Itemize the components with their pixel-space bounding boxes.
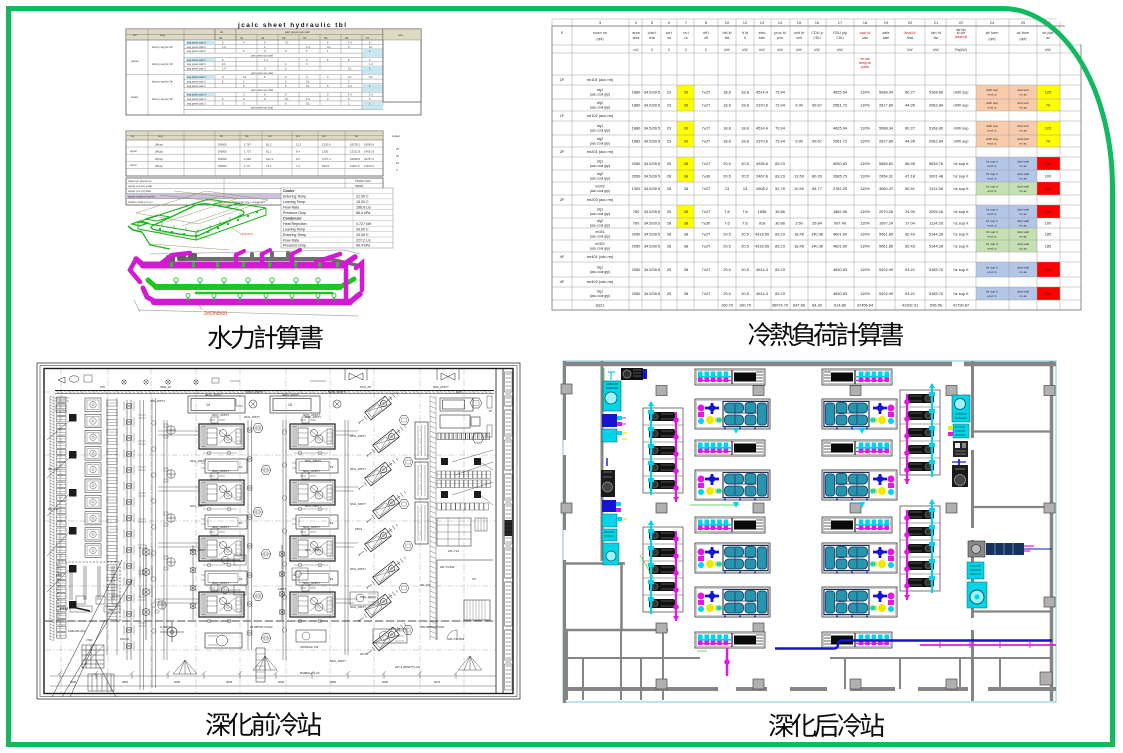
- svg-text:34.5/39.5: 34.5/39.5: [644, 173, 660, 178]
- svg-text:equip prs (a) evap: equip prs (a) evap: [128, 184, 153, 188]
- svg-text:2W_P2s: 2W_P2s: [48, 467, 59, 471]
- svg-text:52.78: 52.78: [775, 186, 785, 191]
- svg-text:2561.72: 2561.72: [833, 138, 847, 143]
- svg-text:J#N_A56TY: J#N_A56TY: [150, 399, 165, 403]
- svg-text:1.4: 1.4: [369, 93, 373, 97]
- svg-text:84.30: 84.30: [812, 303, 823, 308]
- svg-text:kW: kW: [907, 48, 913, 52]
- svg-text:34.5/39.5: 34.5/39.5: [644, 138, 660, 143]
- svg-text:safe: safe: [882, 31, 889, 35]
- svg-text:dn: dn: [220, 30, 224, 34]
- svg-text:25: 25: [667, 267, 671, 272]
- svg-text:seg press calc 0: seg press calc 0: [187, 49, 206, 53]
- svg-text:unit ht: unit ht: [794, 31, 805, 35]
- svg-text:20.5: 20.5: [741, 173, 749, 178]
- svg-text:110%: 110%: [860, 161, 870, 166]
- svg-text:room no: room no: [593, 31, 607, 35]
- svg-text:(opt): (opt): [1020, 37, 1027, 41]
- svg-text:(acu cool grp): (acu cool grp): [590, 294, 610, 298]
- svg-text:rm ac: rm ac: [1019, 189, 1027, 193]
- svg-text:4: 4: [635, 20, 638, 25]
- svg-text:hz sup rt: hz sup rt: [986, 290, 998, 294]
- svg-text:38: 38: [684, 209, 688, 214]
- svg-text:20.5: 20.5: [741, 231, 749, 236]
- svg-text:dnflr sup: dnflr sup: [954, 125, 969, 130]
- svg-text:air form: air form: [986, 31, 999, 35]
- svg-text:1097.24: 1097.24: [879, 220, 894, 225]
- svg-text:20: 20: [908, 20, 913, 25]
- svg-text:30.86: 30.86: [775, 209, 785, 214]
- svg-text:7.6: 7.6: [724, 220, 729, 225]
- svg-text:2#Y-3 2#2W7T2-CN: 2#Y-3 2#2W7T2-CN: [395, 665, 420, 669]
- svg-text:20.5: 20.5: [723, 291, 731, 296]
- svg-text:dn: dn: [220, 134, 224, 138]
- svg-text:1.4: 1.4: [222, 45, 226, 49]
- svg-text:25: 25: [667, 209, 671, 214]
- svg-text:kW: kW: [724, 48, 730, 52]
- svg-text:4#(up): 4#(up): [155, 164, 163, 168]
- svg-text:12: 12: [743, 20, 748, 25]
- svg-text:20.5: 20.5: [741, 267, 749, 272]
- svg-text:21: 21: [934, 20, 939, 25]
- svg-text:bld ld: bld ld: [722, 31, 731, 35]
- svg-text:20.5: 20.5: [741, 291, 749, 296]
- svg-text:5061.85: 5061.85: [879, 243, 893, 248]
- svg-text:C#: C#: [472, 577, 476, 581]
- svg-text:seg press calc 2: seg press calc 2: [187, 84, 206, 88]
- svg-text:36074.70: 36074.70: [772, 303, 789, 308]
- svg-text:dcw wall: dcw wall: [1017, 242, 1029, 246]
- svg-text:1.4: 1.4: [306, 97, 310, 101]
- svg-text:rm ac: rm ac: [1019, 177, 1027, 181]
- svg-text:hz sup rt: hz sup rt: [954, 291, 970, 296]
- svg-text:it ld: it ld: [742, 31, 748, 35]
- svg-text:18.8: 18.8: [741, 89, 749, 94]
- svg-text:hz sup rt: hz sup rt: [986, 242, 998, 246]
- svg-text:3620: 3620: [174, 680, 181, 684]
- svg-text:9.0: 9.0: [296, 157, 300, 161]
- svg-text:dcw wall: dcw wall: [1017, 185, 1029, 189]
- svg-text:ra: ra: [684, 36, 687, 40]
- svg-text:seg press calc 1: seg press calc 1: [187, 62, 206, 66]
- svg-text:82.43: 82.43: [905, 231, 915, 236]
- svg-text:0.1: 0.1: [306, 84, 310, 88]
- svg-text:110%: 110%: [860, 125, 870, 130]
- svg-text:20.5: 20.5: [723, 267, 731, 272]
- svg-text:2.462: 2.462: [244, 157, 251, 161]
- svg-text:2050: 2050: [632, 173, 641, 178]
- svg-text:kW: kW: [796, 48, 802, 52]
- svg-text:rm ac: rm ac: [1019, 224, 1027, 228]
- svg-text:102.3: 102.3: [266, 157, 273, 161]
- svg-text:equip total prs (a+b): equip total prs (a+b): [128, 194, 155, 198]
- svg-text:part press sys calc: part press sys calc: [285, 30, 310, 34]
- svg-text:198: 198: [1045, 291, 1052, 296]
- svg-text:dnflr sup: dnflr sup: [986, 137, 998, 141]
- svg-text:6: 6: [668, 20, 671, 25]
- svg-text:loc: loc: [133, 33, 137, 37]
- svg-text:5088.34: 5088.34: [879, 125, 894, 130]
- svg-text:34.5/39.5: 34.5/39.5: [644, 161, 660, 166]
- svg-text:18278.2: 18278.2: [350, 142, 361, 146]
- svg-text:44.95: 44.95: [905, 138, 915, 143]
- svg-text:140.36: 140.36: [811, 231, 823, 236]
- svg-text:seg press calc 3: seg press calc 3: [187, 101, 206, 105]
- svg-text:5: 5: [651, 20, 654, 25]
- svg-text:NKQ_A56TY: NKQ_A56TY: [303, 581, 320, 585]
- svg-text:83.23: 83.23: [775, 291, 785, 296]
- svg-text:hz sup rt: hz sup rt: [986, 230, 998, 234]
- svg-text:(acu cool grp): (acu cool grp): [590, 212, 610, 216]
- svg-text:factory seg len 3#: factory seg len 3#: [152, 97, 173, 101]
- svg-text:15: 15: [288, 403, 292, 407]
- svg-text:off t: off t: [703, 31, 710, 35]
- svg-text:2F: 2F: [560, 149, 565, 154]
- svg-text:11972.4: 11972.4: [364, 164, 374, 168]
- svg-text:20.5: 20.5: [723, 231, 731, 236]
- svg-text:2954.31: 2954.31: [879, 173, 893, 178]
- svg-text:38600: 38600: [355, 184, 364, 188]
- svg-text:5088.34: 5088.34: [879, 89, 894, 94]
- svg-text:CDU: CDU: [836, 36, 844, 40]
- svg-text:safe: safe: [883, 36, 890, 40]
- svg-text:34.5/39.5: 34.5/39.5: [644, 220, 660, 225]
- svg-text:prs: prs: [296, 134, 300, 138]
- svg-text:13: 13: [760, 20, 765, 25]
- svg-text:1882.06: 1882.06: [833, 209, 847, 214]
- svg-text:lower: lower: [131, 95, 138, 99]
- svg-text:KKG_A5: KKG_A5: [360, 385, 371, 389]
- svg-text:2#-NB79GY/C322: 2#-NB79GY/C322: [250, 625, 273, 629]
- svg-text:4.727 kW: 4.727 kW: [356, 222, 372, 226]
- svg-text:ra t: ra t: [683, 31, 689, 35]
- svg-text:3670: 3670: [434, 680, 441, 684]
- svg-text:seg press calc 2: seg press calc 2: [187, 80, 206, 84]
- svg-text:166.6 L/s: 166.6 L/s: [356, 206, 371, 210]
- svg-text:125: 125: [1045, 89, 1052, 94]
- svg-text:1.4: 1.4: [348, 93, 352, 97]
- svg-text:2727.4: 2727.4: [322, 157, 331, 161]
- svg-text:Flow Rate: Flow Rate: [283, 238, 299, 242]
- svg-text:1880: 1880: [632, 125, 641, 130]
- svg-text:14631.8: 14631.8: [364, 150, 375, 154]
- svg-text:1.4: 1.4: [222, 67, 226, 71]
- svg-text:23: 23: [667, 89, 671, 94]
- svg-text:final ld: final ld: [905, 31, 916, 35]
- svg-text:10.50: 10.50: [794, 186, 805, 191]
- svg-text:rm ac: rm ac: [1019, 247, 1027, 251]
- svg-text:fl: fl: [561, 31, 563, 35]
- svg-text:sa t: sa t: [666, 31, 673, 35]
- svg-text:hz sup rt: hz sup rt: [954, 231, 970, 236]
- svg-text:7±27: 7±27: [702, 231, 711, 236]
- svg-text:rm402 (cdu rm): rm402 (cdu rm): [587, 279, 614, 284]
- svg-text:4318.65: 4318.65: [755, 231, 769, 236]
- svg-text:100: 100: [1045, 173, 1052, 178]
- svg-text:34.5/39.5: 34.5/39.5: [644, 231, 660, 236]
- svg-text:fan ht: fan ht: [931, 31, 941, 35]
- svg-text:Flow Rate: Flow Rate: [283, 206, 299, 210]
- svg-text:13: 13: [743, 186, 747, 191]
- svg-text:3060.47: 3060.47: [879, 186, 893, 191]
- svg-text:h3: h3: [282, 36, 286, 40]
- svg-text:rm ac: rm ac: [1019, 129, 1027, 133]
- svg-text:cfg2: cfg2: [597, 219, 603, 223]
- svg-text:4625.94: 4625.94: [833, 89, 848, 94]
- svg-text:dcw boh: dcw boh: [1017, 88, 1029, 92]
- svg-text:2050: 2050: [632, 161, 641, 166]
- svg-text:11127.9: 11127.9: [350, 164, 360, 168]
- svg-text:rm ac: rm ac: [1019, 106, 1027, 110]
- svg-text:NKG_A56TY: NKG_A56TY: [350, 605, 366, 609]
- svg-text:500X_450TY: 500X_450TY: [246, 390, 264, 394]
- svg-text:hz sup rt: hz sup rt: [954, 267, 970, 272]
- svg-text:2050: 2050: [632, 243, 641, 248]
- svg-text:68.95: 68.95: [905, 161, 915, 166]
- svg-text:17.04: 17.04: [905, 220, 916, 225]
- svg-text:2962.84: 2962.84: [929, 138, 944, 143]
- svg-text:5165.70: 5165.70: [929, 267, 944, 272]
- svg-text:encl ct: encl ct: [988, 142, 997, 146]
- svg-text:(acu cool grp): (acu cool grp): [590, 106, 610, 110]
- svg-text:hz sup rt: hz sup rt: [986, 208, 998, 212]
- svg-text:2#(up): 2#(up): [155, 142, 163, 146]
- svg-text:24: 24: [396, 147, 400, 151]
- svg-text:21.00 C: 21.00 C: [356, 195, 369, 199]
- svg-text:1220.8: 1220.8: [322, 142, 331, 146]
- svg-text:74.1: 74.1: [266, 164, 272, 168]
- svg-text:NKG_A56TY: NKG_A56TY: [305, 415, 321, 419]
- svg-text:23: 23: [667, 138, 671, 143]
- svg-text:factory seg len 1#: factory seg len 1#: [152, 62, 173, 66]
- svg-text:0.1: 0.1: [306, 101, 310, 105]
- svg-text:2#DN500: 2#DN500: [204, 311, 227, 317]
- svg-text:15: 15: [797, 20, 802, 25]
- svg-text:NKG_A56TY: NKG_A56TY: [305, 459, 321, 463]
- svg-text:1.4: 1.4: [348, 84, 352, 88]
- svg-text:(opt): (opt): [597, 37, 604, 41]
- svg-text:2685.73: 2685.73: [833, 173, 847, 178]
- svg-text:110%: 110%: [860, 291, 870, 296]
- svg-text:upper: upper: [131, 59, 139, 63]
- svg-text:kW: kW: [777, 48, 783, 52]
- svg-text:2070.26: 2070.26: [879, 209, 893, 214]
- svg-text:81.2: 81.2: [266, 142, 272, 146]
- svg-text:CDU pip: CDU pip: [833, 31, 847, 35]
- svg-text:2095.16: 2095.16: [929, 209, 943, 214]
- svg-text:8.4: 8.4: [296, 150, 300, 154]
- svg-text:NKQ_A56TY: NKQ_A56TY: [212, 525, 229, 529]
- svg-text:elec: elec: [759, 31, 766, 35]
- svg-text:7.6: 7.6: [742, 220, 747, 225]
- svg-text:P#G2: P#G2: [355, 527, 363, 531]
- svg-text:4514.4: 4514.4: [756, 89, 769, 94]
- svg-text:50.91: 50.91: [905, 186, 915, 191]
- svg-text:83.23: 83.23: [775, 173, 785, 178]
- svg-text:encl ct: encl ct: [988, 212, 997, 216]
- svg-text:kW: kW: [742, 48, 748, 52]
- svg-text:seg press calc 1: seg press calc 1: [187, 67, 206, 71]
- svg-text:hz sup rt: hz sup rt: [986, 266, 998, 270]
- svg-text:2782.25: 2782.25: [833, 186, 847, 191]
- svg-text:0.1: 0.1: [369, 45, 373, 49]
- svg-text:844.8: 844.8: [322, 164, 329, 168]
- svg-text:loc: loc: [131, 134, 135, 138]
- svg-text:18.8: 18.8: [723, 102, 731, 107]
- svg-text:83.23: 83.23: [775, 267, 785, 272]
- svg-text:CDU: CDU: [813, 36, 821, 40]
- svg-text:wtr idx: wtr idx: [956, 28, 966, 32]
- svg-text:760: 760: [633, 209, 640, 214]
- svg-text:5168.80: 5168.80: [929, 89, 944, 94]
- svg-text:19936.9: 19936.9: [364, 142, 375, 146]
- svg-text:1.4: 1.4: [348, 40, 352, 44]
- svg-text:part press sys total: part press sys total: [251, 71, 273, 75]
- svg-text:83.23: 83.23: [775, 161, 785, 166]
- svg-text:2561.72: 2561.72: [833, 102, 847, 107]
- svg-text:sa: sa: [667, 36, 671, 40]
- svg-text:cfg1: cfg1: [597, 160, 603, 164]
- svg-text:110%: 110%: [860, 138, 870, 143]
- svg-text:rem: rem: [398, 33, 404, 37]
- svg-text:5634.76: 5634.76: [929, 161, 943, 166]
- svg-text:seg: seg: [160, 33, 165, 37]
- svg-text:fan: fan: [934, 36, 939, 40]
- svg-text:198: 198: [1045, 161, 1052, 166]
- svg-text:NKG_A56TY: NKG_A56TY: [350, 467, 366, 471]
- svg-text:10: 10: [725, 20, 730, 25]
- svg-text:37456.64: 37456.64: [857, 303, 874, 308]
- svg-text:FbCO2: FbCO2: [120, 637, 129, 641]
- svg-text:11.3: 11.3: [296, 142, 302, 146]
- svg-text:20.5: 20.5: [723, 243, 731, 248]
- svg-text:0.1: 0.1: [327, 45, 331, 49]
- svg-text:rm ac: rm ac: [1019, 93, 1027, 97]
- svg-text:chw: chw: [649, 36, 656, 40]
- svg-text:18.8: 18.8: [723, 125, 731, 130]
- svg-text:25: 25: [667, 161, 671, 166]
- svg-text:22: 22: [396, 154, 400, 158]
- svg-text:1880: 1880: [632, 102, 641, 107]
- svg-text:7±27: 7±27: [702, 89, 711, 94]
- svg-text:7.2: 7.2: [296, 164, 300, 168]
- svg-text:1F: 1F: [560, 77, 565, 82]
- svg-text:NKQ_A56TY: NKQ_A56TY: [303, 469, 320, 473]
- svg-text:station total prs (c): station total prs (c): [128, 200, 153, 204]
- svg-text:h2: h2: [261, 36, 265, 40]
- svg-text:918: 918: [759, 220, 766, 225]
- svg-text:encl ct: encl ct: [988, 129, 997, 133]
- svg-text:Leaving Temp: Leaving Temp: [283, 200, 305, 204]
- svg-text:dcw wall: dcw wall: [1017, 160, 1029, 164]
- svg-text:760: 760: [633, 220, 640, 225]
- svg-text:m2: m2: [634, 48, 639, 52]
- svg-text:3.60: 3.60: [795, 220, 803, 225]
- svg-text:dcw wall: dcw wall: [1017, 230, 1029, 234]
- svg-text:34.5/39.5: 34.5/39.5: [644, 186, 660, 191]
- svg-text:28: 28: [667, 231, 671, 236]
- svg-text:rm102 (acu rm): rm102 (acu rm): [587, 113, 614, 118]
- svg-text:7±30: 7±30: [702, 220, 711, 225]
- svg-text:chw t: chw t: [648, 31, 658, 35]
- svg-text:NKG_A56TY: NKG_A56TY: [244, 415, 260, 419]
- svg-text:NKG_A56TY: NKG_A56TY: [190, 548, 206, 552]
- svg-text:Cooler: Cooler: [283, 189, 295, 193]
- svg-text:3111.38: 3111.38: [929, 186, 943, 191]
- svg-text:(acu cool grp): (acu cool grp): [590, 142, 610, 146]
- svg-text:7.6: 7.6: [742, 209, 747, 214]
- svg-text:4601.69: 4601.69: [833, 231, 847, 236]
- svg-text:JS#NKG2-Y02: JS#NKG2-Y02: [300, 645, 319, 649]
- svg-text:C: C: [685, 48, 688, 52]
- svg-text:28: 28: [667, 243, 671, 248]
- svg-text:63.21: 63.21: [905, 291, 915, 296]
- svg-text:seg press calc 3: seg press calc 3: [187, 97, 206, 101]
- svg-text:7.6: 7.6: [724, 209, 729, 214]
- svg-text:kW: kW: [933, 48, 939, 52]
- svg-text:2#(up): 2#(up): [155, 150, 163, 154]
- svg-text:5102.49: 5102.49: [879, 291, 893, 296]
- svg-text:proc: proc: [777, 36, 784, 40]
- svg-text:16: 16: [239, 521, 243, 525]
- svg-text:1.737: 1.737: [244, 150, 251, 154]
- svg-text:Entering Temp: Entering Temp: [283, 233, 306, 237]
- svg-text:7±30: 7±30: [702, 173, 711, 178]
- svg-text:39.00 C: 39.00 C: [356, 227, 369, 231]
- svg-text:DN500: DN500: [218, 164, 227, 168]
- svg-text:rm201 (acu rm): rm201 (acu rm): [587, 149, 614, 154]
- svg-text:part press sys total: part press sys total: [251, 106, 273, 110]
- svg-text:tot: tot: [355, 134, 358, 138]
- svg-text:dcw wall: dcw wall: [1017, 290, 1029, 294]
- svg-text:3630: 3630: [226, 680, 233, 684]
- svg-text:13: 13: [725, 186, 729, 191]
- svg-text:22707.2: 22707.2: [364, 157, 375, 161]
- svg-text:5050.83: 5050.83: [833, 161, 847, 166]
- svg-text:ac pwr: ac pwr: [1042, 31, 1054, 35]
- svg-text:off: off: [704, 36, 708, 40]
- svg-text:38: 38: [684, 173, 688, 178]
- svg-text:hz sup rt: hz sup rt: [954, 209, 970, 214]
- svg-text:69.67: 69.67: [812, 138, 822, 143]
- svg-text:14: 14: [206, 403, 210, 407]
- svg-text:73.94: 73.94: [775, 125, 786, 130]
- svg-text:34.00 C: 34.00 C: [356, 233, 369, 237]
- svg-text:seg press calc 2: seg press calc 2: [187, 75, 206, 79]
- svg-text:100: 100: [1045, 220, 1052, 225]
- svg-text:3640: 3640: [278, 680, 285, 684]
- svg-text:ac: ac: [1046, 36, 1050, 40]
- svg-text:h1: h1: [240, 36, 244, 40]
- svg-text:area: area: [632, 31, 640, 35]
- svg-text:kW: kW: [837, 48, 843, 52]
- svg-text:rm ac: rm ac: [1019, 212, 1027, 216]
- svg-text:NKG_A56TY: NKG_A56TY: [360, 595, 376, 599]
- svg-text:rm ac: rm ac: [1019, 235, 1027, 239]
- svg-text:18.8: 18.8: [741, 102, 749, 107]
- svg-text:18.8: 18.8: [741, 125, 749, 130]
- svg-text:NKG_A56TY: NKG_A56TY: [190, 504, 206, 508]
- svg-text:seg press calc 3: seg press calc 3: [187, 93, 206, 97]
- svg-text:110%: 110%: [860, 186, 870, 191]
- svg-text:h7: h7: [366, 36, 370, 40]
- svg-text:3: 3: [599, 20, 602, 25]
- svg-text:dnflr sup: dnflr sup: [986, 101, 998, 105]
- svg-text:Ps(kW): Ps(kW): [955, 48, 967, 52]
- svg-text:dnflr sup: dnflr sup: [954, 89, 969, 94]
- svg-text:it: it: [744, 36, 746, 40]
- svg-text:160.70: 160.70: [721, 303, 734, 308]
